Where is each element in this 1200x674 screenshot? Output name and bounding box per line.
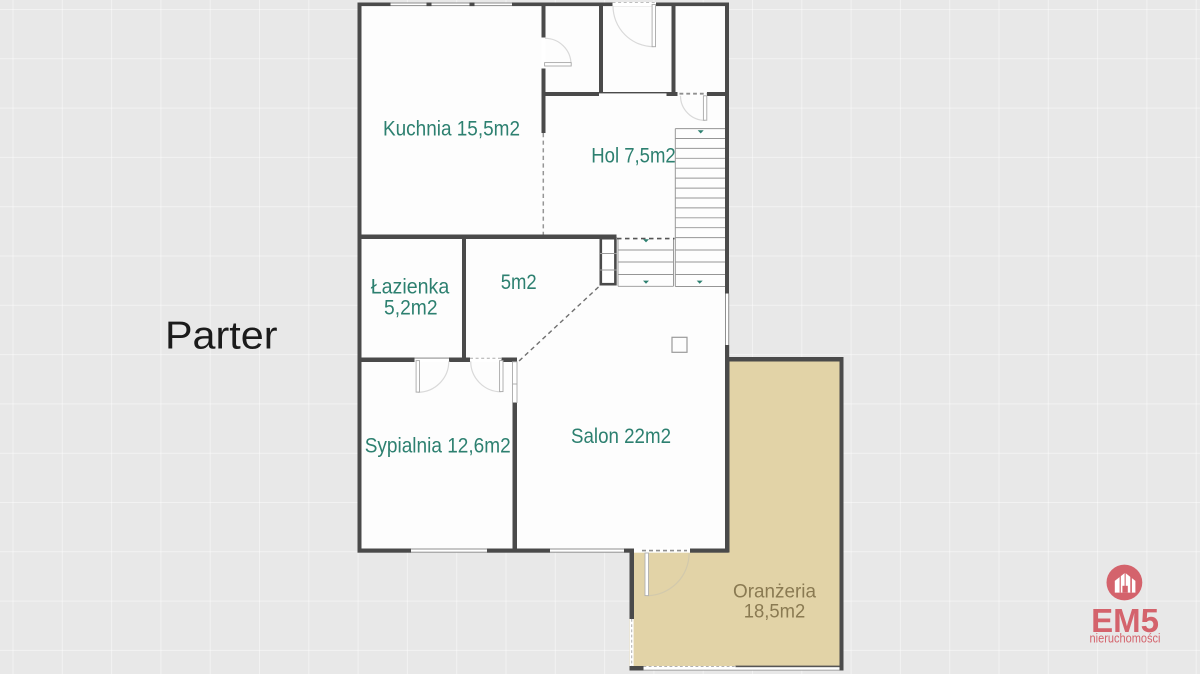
svg-text:Salon 22m2: Salon 22m2 — [571, 424, 671, 448]
svg-text:18,5m2: 18,5m2 — [744, 601, 806, 623]
svg-text:Hol 7,5m2: Hol 7,5m2 — [591, 144, 676, 168]
svg-text:Sypialnia 12,6m2: Sypialnia 12,6m2 — [365, 434, 511, 458]
svg-text:5m2: 5m2 — [501, 270, 537, 294]
svg-text:5,2m2: 5,2m2 — [384, 296, 438, 320]
svg-text:nieruchomości: nieruchomości — [1090, 632, 1161, 646]
svg-text:Parter: Parter — [165, 315, 278, 358]
svg-text:Oranżeria: Oranżeria — [733, 581, 816, 603]
svg-text:Kuchnia 15,5m2: Kuchnia 15,5m2 — [383, 117, 520, 141]
